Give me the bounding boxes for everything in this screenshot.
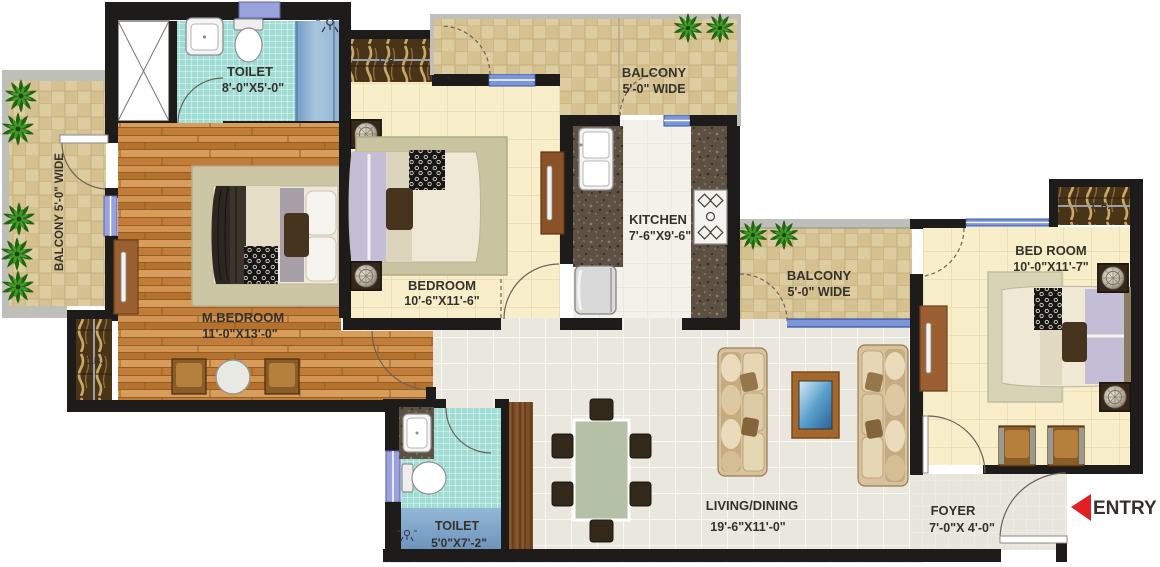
svg-text:FOYER: FOYER: [931, 503, 976, 518]
svg-text:10'-0"X11'-7": 10'-0"X11'-7": [1013, 260, 1089, 274]
svg-text:5'-0" WIDE: 5'-0" WIDE: [622, 82, 685, 96]
svg-text:5'-0" WIDE: 5'-0" WIDE: [787, 285, 850, 299]
svg-text:11'-0"X13'-0": 11'-0"X13'-0": [202, 327, 278, 341]
svg-text:LIVING/DINING: LIVING/DINING: [706, 498, 798, 513]
svg-text:TOILET: TOILET: [227, 64, 273, 79]
svg-text:M.BEDROOM: M.BEDROOM: [202, 310, 284, 325]
svg-text:BED ROOM: BED ROOM: [1015, 243, 1087, 258]
svg-text:BALCONY 5'-0" WIDE: BALCONY 5'-0" WIDE: [54, 153, 66, 271]
svg-text:BALCONY: BALCONY: [622, 65, 687, 80]
svg-text:10'-6"X11'-6": 10'-6"X11'-6": [404, 294, 480, 308]
svg-text:19'-6"X11'-0": 19'-6"X11'-0": [710, 520, 786, 534]
svg-text:ENTRY: ENTRY: [1093, 498, 1157, 519]
svg-text:C.B.: C.B.: [85, 356, 103, 366]
svg-text:BEDROOM: BEDROOM: [408, 278, 476, 293]
svg-text:BALCONY: BALCONY: [787, 268, 852, 283]
svg-text:7'-6"X9'-6": 7'-6"X9'-6": [629, 229, 691, 243]
svg-text:C.B.: C.B.: [379, 56, 397, 66]
svg-text:5'0"X7'-2": 5'0"X7'-2": [431, 536, 487, 550]
svg-text:C.B.: C.B.: [1092, 201, 1110, 211]
svg-text:KITCHEN: KITCHEN: [629, 212, 687, 227]
svg-text:TOILET: TOILET: [435, 519, 480, 533]
svg-text:7'-0"X 4'-0": 7'-0"X 4'-0": [929, 521, 995, 535]
svg-text:8'-0"X5'-0": 8'-0"X5'-0": [222, 81, 284, 95]
